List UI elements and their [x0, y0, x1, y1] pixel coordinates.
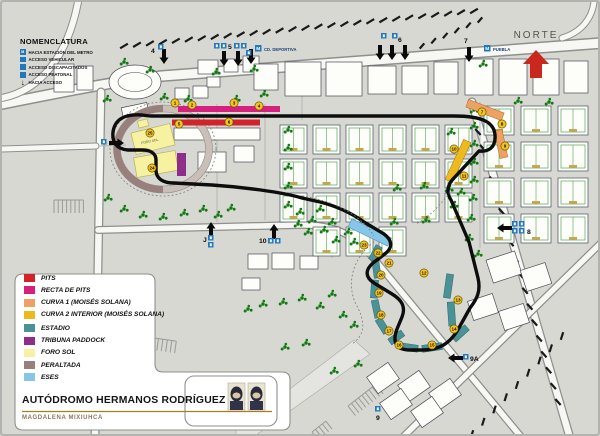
tree-icon — [266, 94, 269, 97]
tree-icon — [318, 304, 321, 307]
nomenclatura-label: HACIA ESTACIÓN DEL METRO — [29, 50, 93, 55]
tree-icon — [457, 193, 460, 196]
rail-tick — [328, 23, 336, 28]
tree-icon — [143, 211, 146, 214]
marker-number: 6 — [228, 120, 231, 125]
tree-icon — [161, 215, 164, 218]
tree-icon — [284, 168, 287, 171]
rail-tick — [224, 33, 232, 38]
nomenclatura-title: NOMENCLATURA — [20, 37, 130, 46]
tree-icon — [250, 309, 253, 312]
tree-icon — [334, 238, 337, 241]
tree-icon — [201, 207, 204, 210]
field-name-tag — [323, 250, 331, 253]
marker-number: 10 — [451, 147, 457, 152]
marker-number: 17 — [386, 329, 392, 334]
rail-tick — [237, 32, 245, 37]
gate-label: 7 — [464, 38, 468, 45]
tree-icon — [248, 305, 251, 308]
tree-icon — [447, 133, 450, 136]
tree-icon — [551, 102, 554, 105]
tree-icon — [188, 95, 191, 98]
rail-tick — [392, 16, 400, 21]
tree-icon — [471, 196, 474, 199]
tree-icon — [290, 167, 293, 170]
rail-tick — [471, 430, 473, 436]
access-icon-glyph — [248, 51, 250, 54]
parking-tick — [166, 340, 168, 352]
tree-icon — [227, 209, 230, 212]
rail-tick — [289, 27, 297, 32]
tree-icon — [163, 213, 166, 216]
tree-icon — [328, 295, 331, 298]
rail-tick — [198, 36, 206, 41]
tree-icon — [288, 144, 291, 147]
tree-icon — [343, 311, 346, 314]
marker-number: 5 — [178, 122, 181, 127]
marker-number: 20 — [378, 273, 384, 278]
marker-number: 2 — [191, 103, 194, 108]
tree-icon — [139, 216, 142, 219]
field-name-tag — [495, 165, 503, 168]
nomenclatura-item: MHACIA ESTACIÓN DEL METRO — [20, 49, 130, 55]
legend-item: ESES — [24, 373, 154, 382]
rail-tick — [538, 357, 540, 365]
parking-tick — [315, 429, 321, 436]
tree-icon — [332, 241, 335, 244]
tree-icon — [254, 65, 257, 68]
tree-icon — [107, 95, 110, 98]
tree-icon — [120, 210, 123, 213]
tree-icon — [184, 209, 187, 212]
rail-tick — [561, 332, 563, 340]
zone-pits — [172, 120, 260, 126]
tree-icon — [453, 132, 456, 135]
tree-icon — [346, 230, 349, 233]
rail-tick — [159, 40, 167, 45]
field-name-tag — [532, 165, 540, 168]
marker-number: 21 — [386, 261, 392, 266]
access-icon-glyph — [160, 45, 162, 48]
tree-icon — [314, 220, 317, 223]
marker-number: 8 — [501, 122, 504, 127]
parking-tick — [170, 341, 172, 353]
legend-swatch — [24, 373, 35, 381]
access-icon-glyph — [243, 44, 245, 47]
access-icon-glyph — [210, 243, 212, 246]
parking-spine — [154, 338, 176, 341]
marker-number: 14 — [451, 327, 457, 332]
tree-icon — [186, 213, 189, 216]
tree-icon — [246, 307, 249, 310]
tree-icon — [302, 294, 305, 297]
tree-icon — [358, 360, 361, 363]
tree-icon — [334, 222, 337, 225]
rail-tick — [315, 24, 323, 29]
tree-icon — [320, 302, 323, 305]
tree-icon — [286, 165, 289, 168]
tree-icon — [281, 348, 284, 351]
tree-icon — [476, 180, 479, 183]
tree-icon — [302, 212, 305, 215]
tree-icon — [320, 205, 323, 208]
rail-tick — [431, 38, 436, 43]
marker-number: 13 — [455, 298, 461, 303]
legend-item: ESTADIO — [24, 324, 154, 333]
parking-tick — [157, 339, 159, 351]
tree-icon — [110, 198, 113, 201]
tree-icon — [290, 186, 293, 189]
tree-icon — [294, 225, 297, 228]
tree-icon — [354, 238, 357, 241]
tree-icon — [105, 97, 108, 100]
nomenclatura-label: ACCESO DISCAPACITADOS — [29, 65, 88, 70]
legend-swatch — [24, 337, 35, 345]
tree-icon — [287, 347, 290, 350]
tree-icon — [199, 210, 202, 213]
nomenclatura-label: HACIA ACCESO — [29, 80, 63, 85]
tree-icon — [330, 220, 333, 223]
tree-icon — [476, 144, 479, 147]
access-icon-glyph — [377, 407, 379, 410]
tree-icon — [261, 302, 264, 305]
access-icon-glyph — [277, 239, 279, 242]
tree-icon — [304, 298, 307, 301]
tree-icon — [326, 230, 329, 233]
tree-icon — [461, 188, 464, 191]
tree-icon — [480, 254, 483, 257]
field-name-tag — [532, 237, 540, 240]
tree-icon — [145, 215, 148, 218]
tree-icon — [229, 206, 232, 209]
tree-icon — [472, 160, 475, 163]
tree-icon — [469, 216, 472, 219]
parking-tick — [161, 339, 163, 351]
tree-icon — [182, 211, 185, 214]
tree-icon — [302, 344, 305, 347]
marker-number: 18 — [378, 313, 384, 318]
tree-icon — [298, 299, 301, 302]
tree-icon — [360, 364, 363, 367]
tree-icon — [122, 207, 125, 210]
tree-icon — [483, 60, 486, 63]
tree-icon — [304, 233, 307, 236]
tree-icon — [344, 233, 347, 236]
sports-fields — [280, 106, 588, 256]
tree-icon — [318, 207, 321, 210]
nomenclatura-item: ACCESO DISCAPACITADOS — [20, 64, 130, 70]
rail-tick — [527, 369, 529, 377]
tree-icon — [284, 131, 287, 134]
parking-tick — [319, 427, 325, 435]
tree-icon — [148, 68, 151, 71]
marker-number: 4 — [258, 104, 261, 109]
gate-label: 6 — [398, 37, 402, 44]
legend-item: FORO SOL — [24, 349, 154, 358]
tree-icon — [399, 188, 402, 191]
access-icon-glyph — [521, 222, 523, 225]
tree-icon — [476, 126, 479, 129]
tree-icon — [316, 210, 319, 213]
tree-icon — [472, 178, 475, 181]
rail-tick — [482, 418, 484, 426]
rail-tick — [444, 11, 452, 16]
gate-label: 8 — [527, 229, 531, 236]
tree-icon — [160, 98, 163, 101]
venue-title: AUTÓDROMO HERMANOS RODRÍGUEZ — [22, 395, 272, 406]
field-name-tag — [323, 216, 331, 219]
marker-number: 1 — [174, 101, 177, 106]
tree-icon — [449, 130, 452, 133]
tree-icon — [256, 69, 259, 72]
tree-icon — [456, 205, 459, 208]
rail-tick — [172, 39, 180, 44]
tree-icon — [104, 199, 107, 202]
tree-icon — [290, 130, 293, 133]
tree-icon — [244, 310, 247, 313]
marker-number: 22 — [375, 251, 381, 256]
tree-icon — [264, 90, 267, 93]
tree-icon — [545, 103, 548, 106]
zone-tribuna-paddock — [177, 153, 186, 176]
tree-icon — [479, 65, 482, 68]
tree-icon — [334, 367, 337, 370]
circuit-legend: PITSRECTA DE PITSCURVA 1 (MOISÉS SOLANA)… — [24, 274, 154, 385]
access-icon-glyph — [521, 229, 523, 232]
tree-icon — [350, 326, 353, 329]
pedestrian-access-icon — [20, 72, 26, 78]
tree-icon — [281, 300, 284, 303]
tree-icon — [184, 100, 187, 103]
tree-icon — [350, 232, 353, 235]
tree-icon — [324, 226, 327, 229]
tree-icon — [152, 70, 155, 73]
legend-swatch — [24, 274, 35, 282]
north-label: NORTE — [500, 30, 572, 41]
tree-icon — [252, 67, 255, 70]
tree-icon — [290, 148, 293, 151]
tree-icon — [469, 199, 472, 202]
access-icon-glyph — [514, 222, 516, 225]
access-icon-glyph — [465, 355, 467, 358]
tree-icon — [474, 140, 477, 143]
tree-icon — [286, 203, 289, 206]
tree-icon — [283, 345, 286, 348]
tree-icon — [290, 205, 293, 208]
tree-icon — [103, 100, 106, 103]
tree-icon — [473, 218, 476, 221]
legend-swatch — [24, 361, 35, 369]
tree-icon — [322, 306, 325, 309]
rail-tick — [470, 9, 478, 14]
tree-icon — [296, 222, 299, 225]
rail-tick — [455, 28, 460, 33]
rail-tick — [353, 20, 361, 25]
tree-icon — [308, 343, 311, 346]
tree-icon — [236, 95, 239, 98]
rail-tick — [405, 15, 413, 20]
tree-icon — [393, 189, 396, 192]
field-name-tag — [290, 216, 298, 219]
tree-icon — [310, 232, 313, 235]
field-name-tag — [495, 201, 503, 204]
access-icon-glyph — [216, 44, 218, 47]
rail-tick — [478, 17, 483, 22]
tree-icon — [214, 70, 217, 73]
tree-icon — [288, 163, 291, 166]
tree-icon — [352, 240, 355, 243]
tree-icon — [420, 187, 423, 190]
tree-icon — [300, 296, 303, 299]
tree-icon — [298, 210, 301, 213]
tree-icon — [284, 187, 287, 190]
tree-icon — [218, 72, 221, 75]
tree-icon — [265, 304, 268, 307]
tree-icon — [473, 194, 476, 197]
nomenclatura-item: ↓HACIA ACCESO — [20, 79, 130, 85]
rail-tick — [516, 381, 518, 389]
tree-icon — [354, 321, 357, 324]
rail-tick — [133, 42, 141, 47]
marker-number: 16 — [396, 343, 402, 348]
tree-icon — [296, 213, 299, 216]
tree-icon — [356, 242, 359, 245]
rail-tick — [263, 29, 271, 34]
legend-label: CURVA 2 INTERIOR (MOISÉS SOLANA) — [41, 311, 164, 318]
field-name-tag — [356, 148, 364, 151]
tree-icon — [260, 95, 263, 98]
marker-number: 12 — [421, 271, 427, 276]
tree-icon — [332, 369, 335, 372]
tree-icon — [547, 100, 550, 103]
road-west-access — [2, 146, 96, 149]
legend-swatch — [24, 324, 35, 332]
metro-station-label: PUEBLA — [493, 47, 510, 52]
tree-icon — [428, 220, 431, 223]
legend-item: RECTA DE PITS — [24, 286, 154, 295]
tree-icon — [516, 99, 519, 102]
tree-icon — [474, 176, 477, 179]
tree-icon — [300, 224, 303, 227]
tree-icon — [233, 208, 236, 211]
legend-swatch — [24, 311, 35, 319]
tree-icon — [150, 66, 153, 69]
field-name-tag — [356, 250, 364, 253]
marker-number: 11 — [462, 174, 467, 179]
tree-icon — [338, 240, 341, 243]
field-name-tag — [389, 182, 397, 185]
rail-tick — [146, 41, 154, 46]
legend-item: CURVA 2 INTERIOR (MOISÉS SOLANA) — [24, 311, 154, 320]
nomenclatura-label: ACCESO PEATONAL — [29, 72, 73, 77]
tree-icon — [476, 252, 479, 255]
tree-icon — [162, 95, 165, 98]
tree-icon — [263, 300, 266, 303]
tree-icon — [463, 192, 466, 195]
tree-icon — [212, 73, 215, 76]
tree-icon — [180, 214, 183, 217]
venue-subtitle: MAGDALENA MIXIUHCA — [22, 415, 272, 421]
legend-swatch — [24, 286, 35, 294]
metro-icon-letter: M — [485, 46, 489, 52]
parking-tick — [175, 341, 177, 353]
tree-icon — [205, 209, 208, 212]
rail-tick — [250, 31, 258, 36]
tree-icon — [478, 250, 481, 253]
marker-number: 24 — [149, 166, 155, 171]
tree-icon — [126, 209, 129, 212]
gate-label: 4 — [151, 48, 155, 55]
legend-label: PITS — [41, 275, 56, 282]
access-icon-glyph — [210, 236, 212, 239]
tree-icon — [469, 234, 472, 237]
tree-icon — [476, 162, 479, 165]
rail-tick — [550, 344, 552, 352]
tree-icon — [304, 341, 307, 344]
access-icon-glyph — [394, 34, 396, 37]
gate-arrow-icon: ↓ — [20, 80, 26, 86]
vehicle-access-icon — [20, 57, 26, 63]
rail-tick — [418, 14, 426, 19]
tree-icon — [214, 216, 217, 219]
tree-icon — [283, 298, 286, 301]
rail-tick — [457, 10, 465, 15]
tree-icon — [308, 221, 311, 224]
tree-icon — [328, 223, 331, 226]
nomenclatura-item: ACCESO PEATONAL — [20, 72, 130, 78]
tree-icon — [471, 214, 474, 217]
legend-label: TRIBUNA PADDOCK — [41, 337, 105, 344]
tree-icon — [310, 218, 313, 221]
tree-icon — [284, 206, 287, 209]
tree-icon — [451, 189, 454, 192]
gate-label: 5 — [228, 44, 232, 51]
legend-swatch — [24, 299, 35, 307]
access-icon-glyph — [223, 44, 225, 47]
metro-station-label: CD. DEPORTIVA — [264, 47, 297, 52]
tree-icon — [322, 228, 325, 231]
nomenclatura-item: ACCESO VEHICULAR — [20, 57, 130, 63]
tree-icon — [285, 302, 288, 305]
legend-label: PERALTADA — [41, 362, 81, 369]
marker-number: 3 — [233, 101, 236, 106]
disabled-access-icon — [20, 64, 26, 70]
tree-icon — [288, 126, 291, 129]
field-name-tag — [290, 182, 298, 185]
rail-tick — [379, 18, 387, 23]
tree-icon — [394, 218, 397, 221]
tree-icon — [424, 182, 427, 185]
tree-icon — [332, 290, 335, 293]
tree-icon — [316, 307, 319, 310]
field-name-tag — [389, 148, 397, 151]
gate-label: 10 — [259, 238, 267, 245]
nomenclatura-label: ACCESO VEHICULAR — [29, 57, 75, 62]
tree-icon — [472, 124, 475, 127]
legend-label: ESTADIO — [41, 325, 70, 332]
tree-icon — [106, 196, 109, 199]
rail-tick — [185, 37, 193, 42]
parking-tick — [312, 432, 318, 436]
tree-icon — [124, 205, 127, 208]
tree-icon — [481, 62, 484, 65]
access-icon-glyph — [103, 140, 105, 143]
tree-icon — [300, 208, 303, 211]
tree-icon — [348, 228, 351, 231]
field-name-tag — [569, 165, 577, 168]
tree-icon — [471, 238, 474, 241]
tree-icon — [286, 146, 289, 149]
